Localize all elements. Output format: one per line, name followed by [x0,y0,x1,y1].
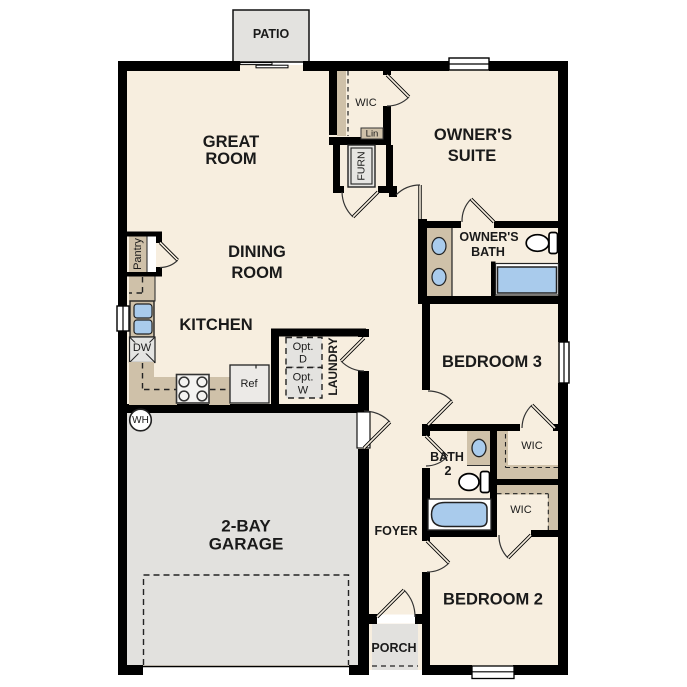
svg-text:WIC: WIC [510,504,531,516]
svg-text:PORCH: PORCH [371,641,416,655]
svg-text:Opt.: Opt. [293,372,314,384]
svg-text:BATH: BATH [430,450,464,464]
svg-text:WIC: WIC [355,97,376,109]
svg-text:FURN: FURN [356,151,368,180]
svg-text:2-BAY: 2-BAY [221,517,271,536]
svg-text:D: D [299,354,307,366]
svg-text:KITCHEN: KITCHEN [179,316,252,334]
svg-text:BATH: BATH [471,245,505,259]
svg-text:OWNER'S: OWNER'S [459,230,518,244]
svg-text:LAUNDRY: LAUNDRY [326,337,340,395]
svg-text:DW: DW [133,342,152,354]
svg-text:Ref: Ref [240,378,258,390]
svg-text:WIC: WIC [521,440,542,452]
svg-text:OWNER'S: OWNER'S [434,126,512,144]
svg-text:Opt.: Opt. [293,341,314,353]
svg-text:BEDROOM 3: BEDROOM 3 [442,353,542,371]
svg-text:W: W [298,385,309,397]
svg-text:SUITE: SUITE [448,147,497,165]
svg-text:FOYER: FOYER [374,524,417,538]
svg-text:GARAGE: GARAGE [209,535,284,554]
svg-text:PATIO: PATIO [253,27,290,41]
svg-text:DINING: DINING [228,243,286,261]
svg-text:GREAT: GREAT [203,133,260,151]
svg-text:WH: WH [132,415,149,426]
svg-text:2: 2 [445,464,452,478]
svg-text:BEDROOM 2: BEDROOM 2 [443,591,543,609]
svg-text:Lin: Lin [366,129,379,140]
svg-text:Pantry: Pantry [132,238,144,270]
svg-text:ROOM: ROOM [205,150,256,168]
svg-text:ROOM: ROOM [231,264,282,282]
